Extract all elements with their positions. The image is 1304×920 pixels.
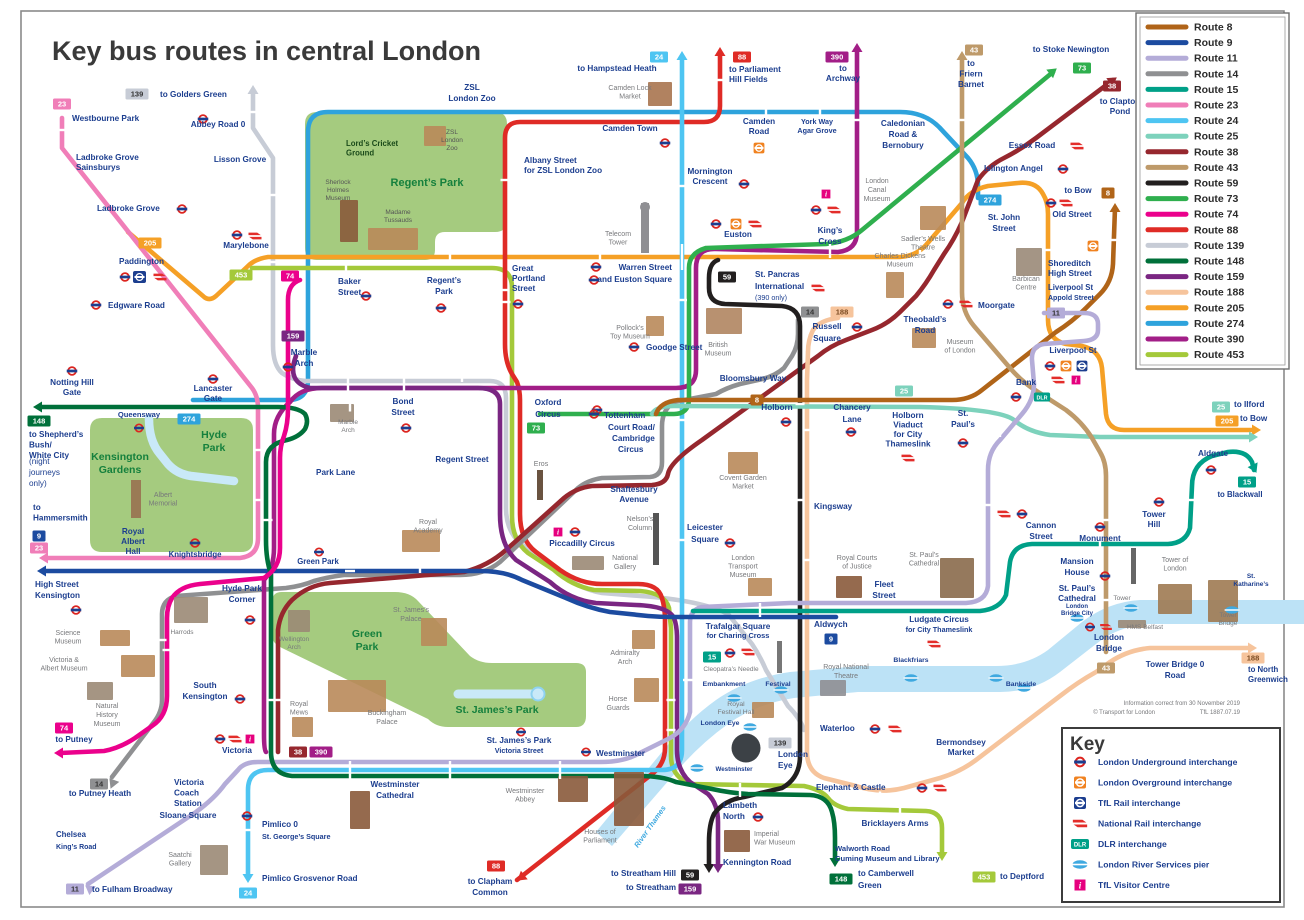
svg-text:Route 88: Route 88 [1194, 224, 1239, 236]
svg-text:Information correct from 30 No: Information correct from 30 November 201… [1124, 701, 1241, 707]
svg-text:73: 73 [1078, 64, 1086, 73]
svg-text:148: 148 [835, 875, 848, 884]
svg-text:38: 38 [294, 748, 302, 757]
svg-text:Route 205: Route 205 [1194, 302, 1244, 314]
svg-text:DLR: DLR [1036, 395, 1047, 401]
svg-text:Pimlico Grosvenor Road: Pimlico Grosvenor Road [262, 874, 358, 883]
svg-text:Warren Street: Warren Street [619, 263, 673, 272]
svg-text:St. George’s Square: St. George’s Square [262, 832, 330, 841]
svg-text:DLR interchange: DLR interchange [1098, 839, 1167, 849]
svg-text:for Charing Cross: for Charing Cross [707, 631, 770, 640]
svg-text:Route 74: Route 74 [1194, 209, 1239, 221]
svg-text:ScienceMuseum: ScienceMuseum [55, 630, 82, 646]
svg-text:Queensway: Queensway [118, 410, 161, 419]
svg-text:139: 139 [774, 739, 787, 748]
svg-text:to Bow: to Bow [1240, 414, 1268, 423]
svg-text:Route 23: Route 23 [1194, 100, 1239, 112]
svg-text:Route 274: Route 274 [1194, 318, 1244, 330]
svg-text:LondonTransportMuseum: LondonTransportMuseum [728, 555, 758, 579]
svg-text:205: 205 [144, 239, 157, 248]
svg-text:Moorgate: Moorgate [978, 301, 1015, 310]
svg-text:Route 73: Route 73 [1194, 193, 1239, 205]
svg-text:Eros: Eros [534, 461, 549, 468]
svg-text:139: 139 [131, 90, 144, 99]
svg-text:Holborn: Holborn [761, 403, 792, 412]
svg-text:Chelsea: Chelsea [56, 830, 87, 839]
svg-text:23: 23 [58, 100, 66, 109]
svg-text:88: 88 [492, 862, 500, 871]
svg-text:Route 148: Route 148 [1194, 256, 1244, 268]
svg-text:Goodge Street: Goodge Street [646, 343, 703, 352]
svg-text:Elephant & Castle: Elephant & Castle [816, 783, 886, 792]
svg-text:Monument: Monument [1079, 534, 1121, 543]
svg-text:Islington Angel: Islington Angel [984, 164, 1043, 173]
svg-text:59: 59 [686, 871, 694, 880]
svg-text:Essex Road: Essex Road [1009, 141, 1055, 150]
svg-text:Kennington Road: Kennington Road [723, 858, 791, 867]
svg-text:MorningtonCrescent: MorningtonCrescent [687, 167, 732, 186]
svg-text:National Rail interchange: National Rail interchange [1098, 819, 1201, 829]
svg-text:Key: Key [1070, 734, 1105, 755]
svg-text:Paddington: Paddington [119, 257, 164, 266]
svg-text:TfL Visitor Centre: TfL Visitor Centre [1098, 880, 1170, 890]
svg-text:Route 25: Route 25 [1194, 131, 1239, 143]
svg-text:11: 11 [71, 885, 79, 894]
svg-text:Festival: Festival [765, 681, 790, 688]
svg-text:Edgware Road: Edgware Road [108, 301, 165, 310]
svg-text:HMS Belfast: HMS Belfast [1127, 624, 1163, 631]
svg-text:to Putney: to Putney [55, 735, 93, 744]
svg-text:Park Lane: Park Lane [316, 468, 356, 477]
svg-text:9: 9 [37, 532, 41, 541]
svg-text:St. Pancras: St. Pancras [755, 270, 800, 279]
svg-text:Court Road/: Court Road/ [608, 423, 656, 432]
svg-text:Tottenham: Tottenham [604, 411, 645, 420]
svg-text:Route 390: Route 390 [1194, 334, 1244, 346]
svg-text:Camden Town: Camden Town [602, 124, 657, 133]
svg-text:i: i [557, 529, 559, 537]
svg-text:York WayAgar Grove: York WayAgar Grove [797, 117, 836, 135]
svg-text:Route 9: Route 9 [1194, 37, 1233, 49]
svg-text:Euston: Euston [724, 230, 752, 239]
svg-text:King’s Road: King’s Road [56, 844, 97, 851]
svg-text:International: International [755, 282, 804, 291]
svg-text:London Eye: London Eye [701, 720, 740, 727]
svg-text:Bankside: Bankside [1006, 681, 1036, 688]
svg-text:Route 24: Route 24 [1194, 115, 1239, 127]
svg-text:SherlockHolmesMuseum: SherlockHolmesMuseum [325, 179, 351, 202]
svg-text:St. Paul’sCathedral: St. Paul’sCathedral [909, 552, 940, 568]
svg-text:St. James’s Park: St. James’s Park [455, 704, 538, 716]
svg-text:London Overground interchange: London Overground interchange [1098, 778, 1232, 788]
svg-text:390: 390 [315, 748, 328, 757]
svg-text:to Hampstead Heath: to Hampstead Heath [577, 64, 656, 73]
svg-text:188: 188 [836, 308, 849, 317]
svg-text:25: 25 [1217, 403, 1225, 412]
svg-text:Piccadilly Circus: Piccadilly Circus [549, 539, 615, 548]
svg-text:74: 74 [60, 724, 69, 733]
svg-text:205: 205 [1221, 417, 1234, 426]
svg-text:38: 38 [1108, 82, 1116, 91]
svg-text:Westminster: Westminster [596, 749, 646, 758]
svg-text:to Streatham Hill: to Streatham Hill [611, 869, 676, 878]
svg-text:St. Paul’sCathedral: St. Paul’sCathedral [1058, 584, 1096, 603]
svg-text:159: 159 [287, 332, 300, 341]
svg-text:i: i [249, 736, 251, 744]
svg-text:43: 43 [970, 46, 978, 55]
svg-text:St. James’s Park: St. James’s Park [487, 736, 552, 745]
svg-text:274: 274 [984, 196, 997, 205]
svg-text:SaatchiGallery: SaatchiGallery [168, 852, 192, 868]
svg-text:23: 23 [35, 544, 43, 553]
svg-text:to Deptford: to Deptford [1000, 872, 1044, 881]
svg-text:148: 148 [33, 417, 46, 426]
svg-text:London Underground interchange: London Underground interchange [1098, 757, 1238, 767]
svg-text:for City Thameslink: for City Thameslink [906, 625, 973, 634]
svg-text:Embankment: Embankment [703, 681, 746, 688]
svg-text:Lambeth: Lambeth [723, 801, 757, 810]
svg-text:to Putney Heath: to Putney Heath [69, 789, 131, 798]
svg-text:453: 453 [235, 271, 248, 280]
svg-text:Waterloo: Waterloo [820, 724, 855, 733]
svg-text:to Camberwell: to Camberwell [858, 869, 914, 878]
svg-text:Tower: Tower [1113, 595, 1131, 602]
svg-text:and Euston Square: and Euston Square [597, 275, 672, 284]
svg-text:to Ilford: to Ilford [1234, 400, 1264, 409]
svg-text:25: 25 [900, 387, 908, 396]
svg-text:274: 274 [183, 415, 196, 424]
svg-text:Liverpool St: Liverpool St [1049, 346, 1097, 355]
svg-text:Ladbroke Grove: Ladbroke Grove [97, 204, 160, 213]
svg-text:TowerBridge: TowerBridge [1219, 612, 1238, 627]
svg-text:15: 15 [708, 653, 716, 662]
svg-text:London River Services pier: London River Services pier [1098, 860, 1210, 870]
svg-text:Victoria: Victoria [222, 746, 252, 755]
svg-text:to Fulham Broadway: to Fulham Broadway [92, 885, 173, 894]
svg-text:Route 8: Route 8 [1194, 22, 1233, 34]
svg-text:Bricklayers Arms: Bricklayers Arms [861, 819, 929, 828]
svg-text:to Blackwall: to Blackwall [1217, 490, 1262, 499]
svg-text:9: 9 [829, 635, 833, 644]
svg-text:Victoria Street: Victoria Street [495, 746, 544, 755]
svg-text:453: 453 [978, 873, 991, 882]
svg-text:Kingsway: Kingsway [814, 502, 853, 511]
svg-text:DLR: DLR [1074, 843, 1087, 849]
svg-text:Liverpool St: Liverpool St [1048, 283, 1093, 292]
svg-text:North: North [723, 812, 745, 821]
svg-text:Circus: Circus [618, 445, 644, 454]
svg-text:390: 390 [831, 53, 844, 62]
svg-text:to Bow: to Bow [1064, 186, 1092, 195]
svg-text:59: 59 [723, 273, 731, 282]
svg-text:to Stoke Newington: to Stoke Newington [1033, 45, 1109, 54]
svg-text:73: 73 [532, 424, 540, 433]
svg-text:Walworth Road: Walworth Road [835, 844, 890, 853]
svg-text:Tower Bridge 0: Tower Bridge 0 [1146, 660, 1205, 669]
svg-text:Russell: Russell [812, 322, 841, 331]
svg-text:Route 59: Route 59 [1194, 178, 1239, 190]
svg-text:Route 14: Route 14 [1194, 68, 1239, 80]
svg-text:Old Street: Old Street [1052, 210, 1091, 219]
svg-text:KensingtonGardens: KensingtonGardens [91, 451, 149, 476]
svg-text:188: 188 [1247, 654, 1260, 663]
svg-text:BarbicanCentre: BarbicanCentre [1012, 276, 1040, 292]
svg-text:Cambridge: Cambridge [612, 434, 655, 443]
svg-text:Square: Square [813, 334, 841, 343]
svg-text:43: 43 [1102, 664, 1110, 673]
svg-text:GreenPark: GreenPark [352, 628, 382, 653]
svg-text:NaturalHistoryMuseum: NaturalHistoryMuseum [94, 703, 121, 728]
svg-text:© Transport for London: © Transport for London [1093, 709, 1155, 716]
svg-text:Route 38: Route 38 [1194, 146, 1239, 158]
svg-text:to Golders Green: to Golders Green [160, 90, 227, 99]
svg-text:MadameTussauds: MadameTussauds [384, 209, 413, 224]
svg-text:TelecomTower: TelecomTower [605, 231, 631, 247]
svg-text:Route 43: Route 43 [1194, 162, 1239, 174]
svg-text:88: 88 [738, 53, 746, 62]
svg-text:Appold Street: Appold Street [1048, 295, 1095, 302]
svg-text:HydePark: HydePark [201, 429, 227, 454]
svg-text:Bloomsbury Way: Bloomsbury Way [720, 374, 787, 383]
svg-text:RoyalMews: RoyalMews [290, 701, 309, 717]
svg-text:Royal Courtsof Justice: Royal Courtsof Justice [837, 555, 878, 571]
svg-text:Cuming Museum and Library: Cuming Museum and Library [835, 854, 940, 863]
svg-text:14: 14 [806, 308, 815, 317]
svg-text:Regent Street: Regent Street [435, 455, 489, 464]
svg-text:Pimlico 0: Pimlico 0 [262, 820, 298, 829]
svg-text:Route 453: Route 453 [1194, 349, 1244, 361]
svg-text:Aldgate: Aldgate [1198, 449, 1228, 458]
svg-text:Lisson Grove: Lisson Grove [214, 155, 267, 164]
svg-text:Blackfriars: Blackfriars [893, 657, 928, 664]
svg-text:Knightsbridge: Knightsbridge [169, 550, 223, 559]
svg-text:Marylebone: Marylebone [223, 241, 269, 250]
svg-text:to Streatham: to Streatham [626, 883, 676, 892]
svg-text:TfL 1887.07.19: TfL 1887.07.19 [1200, 710, 1241, 716]
svg-text:Regent’s Park: Regent’s Park [391, 177, 465, 189]
svg-text:24: 24 [655, 53, 664, 62]
svg-text:Bank: Bank [1016, 378, 1036, 387]
svg-text:14: 14 [95, 780, 104, 789]
svg-text:8: 8 [755, 396, 759, 405]
svg-text:Ludgate Circus: Ludgate Circus [909, 615, 969, 624]
svg-text:Abbey Road 0: Abbey Road 0 [191, 120, 246, 129]
svg-text:Tower ofLondon: Tower ofLondon [1162, 557, 1189, 573]
svg-text:15: 15 [1243, 478, 1251, 487]
svg-text:Route 11: Route 11 [1194, 53, 1238, 65]
svg-text:Westbourne Park: Westbourne Park [72, 114, 140, 123]
svg-text:Route 159: Route 159 [1194, 271, 1244, 283]
svg-text:Road: Road [1165, 671, 1185, 680]
svg-text:Westminster: Westminster [715, 766, 753, 773]
svg-text:Route 139: Route 139 [1194, 240, 1244, 252]
svg-text:Route 15: Route 15 [1194, 84, 1239, 96]
svg-text:159: 159 [684, 885, 697, 894]
svg-text:Museumof London: Museumof London [944, 339, 975, 355]
svg-text:Harrods: Harrods [170, 629, 194, 636]
svg-text:Trafalgar Square: Trafalgar Square [706, 622, 771, 631]
svg-text:Green Park: Green Park [297, 557, 339, 566]
svg-text:Route 188: Route 188 [1194, 287, 1244, 299]
svg-text:24: 24 [244, 889, 253, 898]
svg-text:74: 74 [286, 272, 295, 281]
svg-text:i: i [1075, 377, 1077, 385]
svg-text:Sloane Square: Sloane Square [160, 811, 217, 820]
svg-text:Green: Green [858, 881, 882, 890]
svg-text:i: i [825, 191, 827, 199]
svg-text:Cleopatra’s Needle: Cleopatra’s Needle [703, 666, 759, 673]
svg-text:Aldwych: Aldwych [814, 620, 848, 629]
svg-text:8: 8 [1106, 189, 1110, 198]
svg-text:Key bus routes in central Lond: Key bus routes in central London [52, 36, 481, 66]
svg-text:(390 only): (390 only) [755, 293, 787, 302]
svg-text:11: 11 [1052, 309, 1060, 318]
svg-text:TfL Rail interchange: TfL Rail interchange [1098, 798, 1181, 808]
svg-text:ShoreditchHigh Street: ShoreditchHigh Street [1048, 259, 1092, 278]
svg-text:Houses ofParliament: Houses ofParliament [583, 829, 617, 845]
svg-text:BritishMuseum: BritishMuseum [705, 342, 732, 358]
